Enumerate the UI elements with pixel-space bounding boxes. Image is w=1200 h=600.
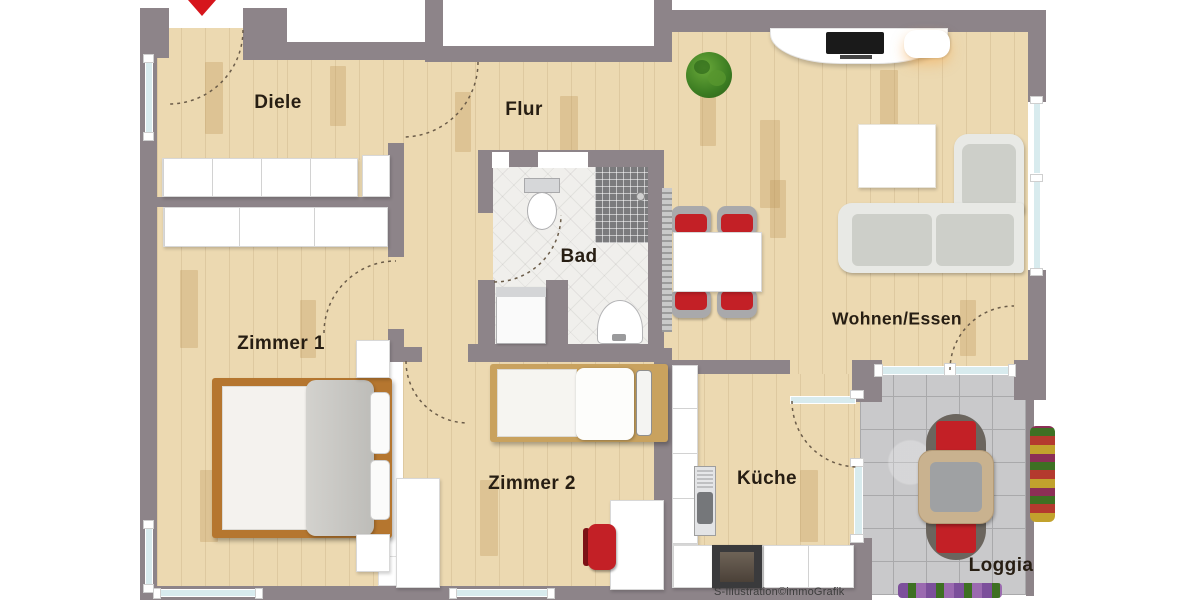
window-zimmer2-south xyxy=(456,589,548,597)
sparkasse-logo-icon: Ṡ xyxy=(714,586,722,598)
window-jamb xyxy=(153,588,161,599)
wall-entrance-right xyxy=(243,8,287,60)
room-label-kueche: Küche xyxy=(737,468,797,490)
watermark: Ṡ-Illustration©immoGrafik xyxy=(714,586,894,598)
nightstand xyxy=(356,534,390,572)
toilet-tank xyxy=(524,178,560,193)
window-right-lower xyxy=(1033,180,1041,270)
window-jamb xyxy=(143,520,154,529)
plank-shade xyxy=(180,270,198,348)
bed-pillow xyxy=(370,392,390,454)
wardrobe-diele xyxy=(162,158,358,197)
sofa-cushion xyxy=(936,214,1014,266)
room-label-loggia: Loggia xyxy=(969,555,1034,577)
stove-oven xyxy=(720,552,754,582)
window-jamb xyxy=(547,588,555,599)
window-jamb xyxy=(1030,268,1043,276)
wall-bad-alcove-right xyxy=(546,280,568,344)
room-label-zimmer1: Zimmer 1 xyxy=(237,333,325,355)
chair-cushion xyxy=(675,291,707,310)
wall-loggia-corner xyxy=(1014,360,1046,400)
wall-bad-left-lower xyxy=(478,280,495,344)
kitchen-counter-bottom xyxy=(672,545,854,588)
neighbor-room xyxy=(443,0,654,46)
office-chair-seat xyxy=(588,524,616,570)
window-jamb xyxy=(255,588,263,599)
toilet-bowl xyxy=(527,192,557,230)
bad-wall-niche xyxy=(492,152,509,168)
bed-single-pillow xyxy=(636,370,652,436)
wall-topleft-corner xyxy=(157,8,169,58)
dining-table xyxy=(673,232,762,292)
window-jamb xyxy=(1008,364,1016,377)
plant-leaf xyxy=(694,60,710,74)
bed-single-sheet xyxy=(497,369,577,437)
room-label-zimmer2: Zimmer 2 xyxy=(488,473,576,495)
window-left-upper xyxy=(145,62,153,134)
bed-double-mattress xyxy=(222,386,308,530)
wall-band-right xyxy=(468,344,664,362)
wood-floor-doorgap1 xyxy=(388,257,404,329)
window-jamb xyxy=(1030,174,1043,182)
window-jamb xyxy=(850,390,864,399)
chair-cushion xyxy=(721,291,753,310)
bed-pillow xyxy=(370,460,390,520)
wall-neighbor-right xyxy=(654,0,672,62)
coffee-table xyxy=(858,124,936,188)
room-label-flur: Flur xyxy=(505,99,543,121)
wall-wardrobe xyxy=(157,197,404,207)
room-label-bad: Bad xyxy=(560,246,597,268)
desk xyxy=(610,500,664,590)
window-zimmer1-south xyxy=(160,589,256,597)
wardrobe-zimmer1 xyxy=(163,207,388,247)
loggia-chair-cushion xyxy=(936,521,976,553)
plank-shade xyxy=(455,92,471,152)
flower-box-right xyxy=(1030,426,1055,522)
dining-chair xyxy=(671,288,711,318)
shower-head xyxy=(636,192,645,201)
chair-cushion xyxy=(721,214,753,233)
washbasin-faucet xyxy=(612,334,626,341)
window-jamb xyxy=(143,54,154,63)
table-lamp xyxy=(904,30,950,58)
window-jamb xyxy=(850,458,864,467)
window-jamb xyxy=(944,363,956,376)
loggia-table-glass xyxy=(930,462,982,512)
wall-neighbor-bottom xyxy=(443,46,672,62)
kitchen-sink-drainer xyxy=(697,470,713,488)
shower-tray xyxy=(595,167,648,243)
room-label-diele: Diele xyxy=(254,92,301,114)
entrance-arrow-icon xyxy=(188,0,216,16)
plank-shade xyxy=(770,180,786,238)
bed-double-blanket xyxy=(306,380,374,536)
bed-single-duvet xyxy=(576,368,634,440)
plank-shade xyxy=(700,90,716,146)
chair-cushion xyxy=(675,214,707,233)
plank-shade xyxy=(205,62,223,134)
plank-shade xyxy=(330,66,346,126)
room-label-wohnen-essen: Wohnen/Essen xyxy=(832,309,962,330)
wall-diele-top xyxy=(287,42,443,60)
window-jamb xyxy=(874,364,883,377)
window-right-upper xyxy=(1033,102,1041,174)
sofa-chaise-cushion xyxy=(962,144,1016,208)
washing-machine-panel xyxy=(496,287,546,297)
sofa-cushion xyxy=(852,214,932,266)
nightstand xyxy=(356,340,390,378)
dining-chair xyxy=(717,288,757,318)
cabinet-zimmer1 xyxy=(396,478,440,588)
loggia-chair-cushion xyxy=(936,421,976,453)
radiator xyxy=(662,188,672,332)
watermark-text: -Illustration©immoGrafik xyxy=(722,586,845,598)
wall-neighbor-left xyxy=(425,0,443,62)
window-jamb xyxy=(143,132,154,141)
wall-flur-zimmer1-lower xyxy=(388,329,404,362)
kitchen-sink-basin xyxy=(697,492,713,524)
plank-shade xyxy=(800,470,818,542)
window-jamb xyxy=(449,588,457,599)
plank-shade xyxy=(960,300,976,356)
window-kueche-loggia xyxy=(854,464,863,540)
flower-box-bottom xyxy=(898,583,1002,598)
floorplan-canvas: Diele Flur Bad Zimmer 1 Zimmer 2 Küche W… xyxy=(0,0,1200,600)
tv-stand xyxy=(840,55,872,59)
window-left-lower xyxy=(145,528,153,586)
glass-door-kueche-loggia xyxy=(790,396,856,404)
bad-wall-niche xyxy=(538,152,588,168)
cabinet-diele xyxy=(362,155,390,197)
window-jamb xyxy=(850,534,864,543)
plant-leaf xyxy=(708,70,726,86)
wall-bad-left-upper xyxy=(478,167,493,213)
tv xyxy=(826,32,884,54)
window-jamb xyxy=(1030,96,1043,104)
wall-right-upper xyxy=(1028,12,1046,102)
